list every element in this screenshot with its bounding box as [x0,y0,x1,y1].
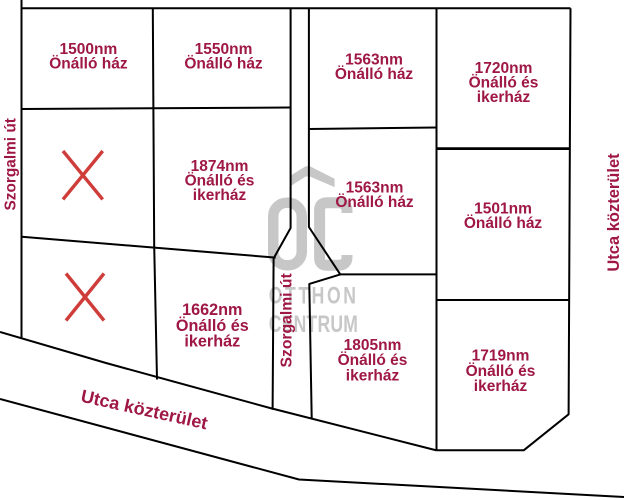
svg-text:ikerház: ikerház [193,187,247,204]
svg-text:Önálló ház: Önálló ház [335,66,414,83]
svg-text:Szorgalmi út: Szorgalmi út [279,273,296,368]
svg-text:Utca közterület: Utca közterület [605,153,623,272]
svg-text:Önálló és: Önálló és [338,352,408,369]
svg-text:Önálló ház: Önálló ház [335,194,414,211]
svg-text:ikerház: ikerház [346,367,400,384]
svg-text:Önálló ház: Önálló ház [49,55,128,72]
svg-text:ikerház: ikerház [184,332,240,350]
svg-text:ikerház: ikerház [477,89,531,106]
svg-text:Szorgalmi út: Szorgalmi út [2,118,19,210]
svg-text:Önálló ház: Önálló ház [184,55,263,72]
svg-text:Önálló ház: Önálló ház [464,215,543,232]
svg-text:ikerház: ikerház [474,378,528,395]
